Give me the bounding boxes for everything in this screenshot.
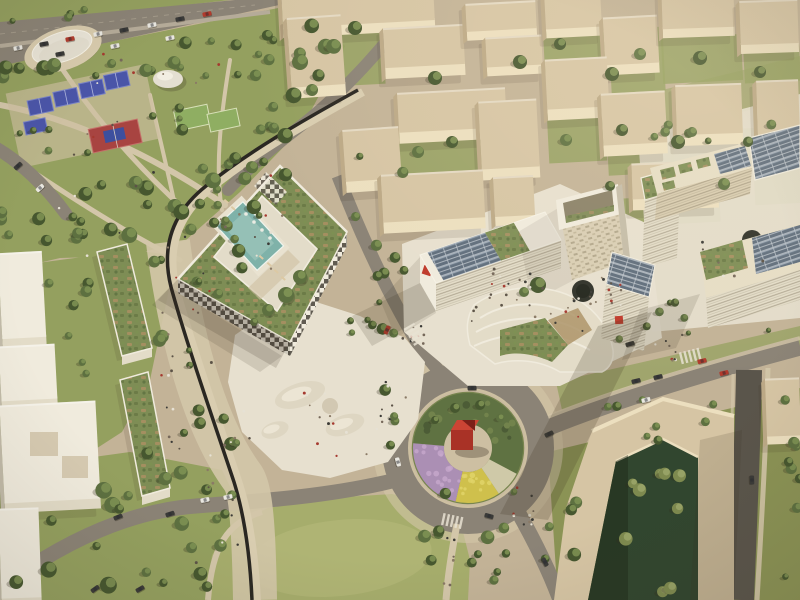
scene-rendering: Bird's-eye architectural visualization o… xyxy=(0,0,800,600)
layer-color-grading xyxy=(0,0,800,600)
stage: Bird's-eye architectural visualization o… xyxy=(0,0,800,600)
vignette-overlay xyxy=(0,0,800,600)
